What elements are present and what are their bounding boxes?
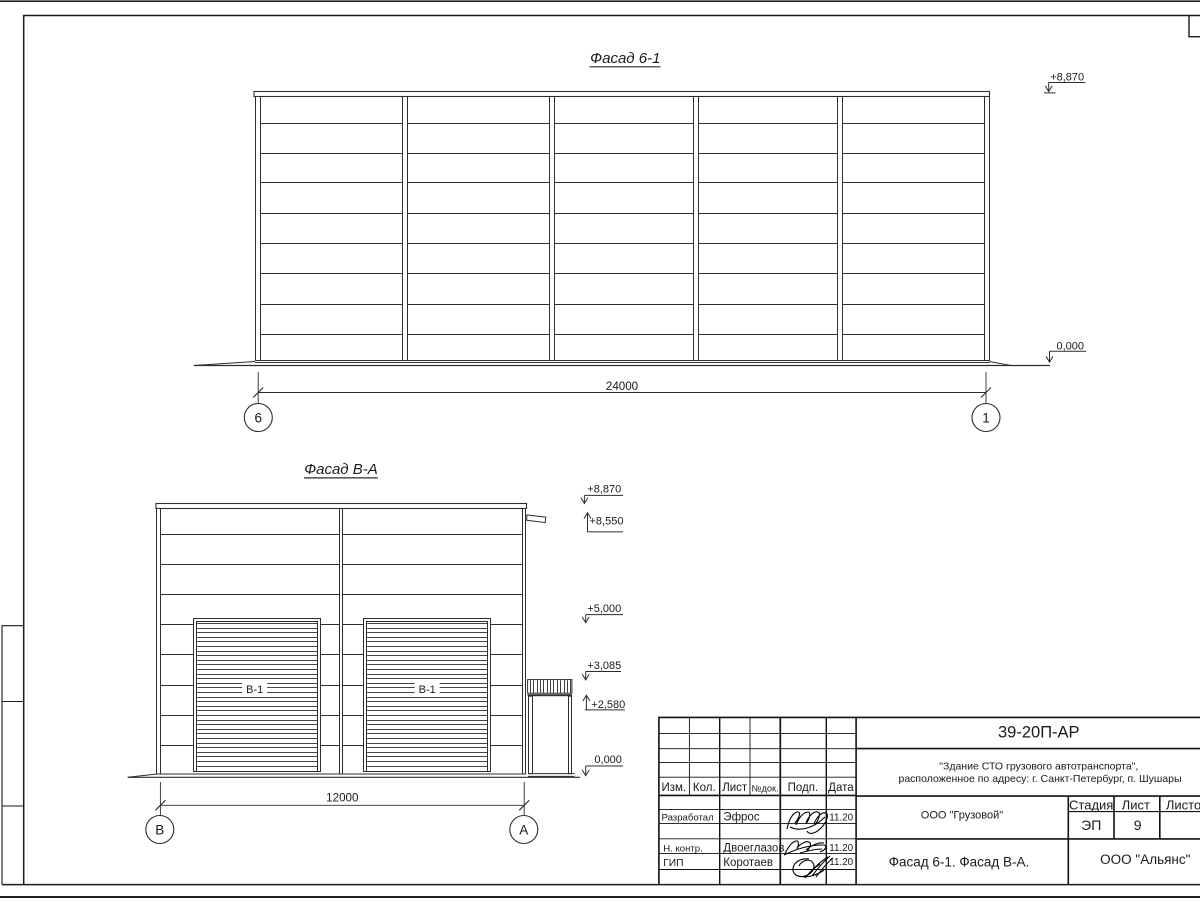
svg-text:Листов: Листов (1166, 798, 1200, 813)
svg-text:Подп.: Подп. (788, 782, 819, 794)
svg-text:Фасад В-А: Фасад В-А (304, 461, 378, 478)
svg-text:ООО "Альянс": ООО "Альянс" (1100, 852, 1190, 867)
svg-text:Фасад 6-1: Фасад 6-1 (590, 50, 660, 67)
svg-text:0,000: 0,000 (594, 754, 622, 766)
svg-text:1: 1 (982, 410, 990, 425)
svg-text:Лист: Лист (722, 782, 748, 794)
svg-text:+8,550: +8,550 (590, 516, 624, 528)
svg-text:Разработал: Разработал (662, 812, 714, 823)
svg-text:11.20: 11.20 (829, 843, 853, 854)
svg-text:Эфрос: Эфрос (723, 812, 760, 824)
svg-text:ЭП: ЭП (1081, 817, 1101, 833)
svg-text:Стадия: Стадия (1069, 798, 1113, 813)
svg-text:Лист: Лист (1122, 798, 1150, 813)
svg-text:Дата: Дата (828, 782, 854, 794)
svg-text:+5,000: +5,000 (587, 603, 621, 615)
svg-text:11.20: 11.20 (829, 812, 853, 823)
svg-text:Фасад 6-1. Фасад В-А.: Фасад 6-1. Фасад В-А. (889, 854, 1030, 869)
svg-text:0,000: 0,000 (1057, 340, 1085, 352)
svg-text:"Здание СТО грузового автотран: "Здание СТО грузового автотранспорта", (939, 761, 1138, 773)
svg-text:ООО "Грузовой": ООО "Грузовой" (921, 810, 1003, 822)
svg-text:А: А (519, 822, 528, 837)
svg-text:+8,870: +8,870 (587, 484, 621, 496)
svg-text:Изм.: Изм. (661, 782, 686, 794)
svg-text:+2,580: +2,580 (591, 699, 625, 711)
svg-text:В-1: В-1 (419, 684, 436, 696)
svg-text:+3,085: +3,085 (587, 660, 621, 672)
svg-text:В: В (155, 822, 164, 837)
svg-text:39-20П-АР: 39-20П-АР (998, 723, 1080, 741)
svg-text:ГИП: ГИП (663, 858, 683, 869)
svg-text:Двоеглазов: Двоеглазов (723, 843, 784, 855)
svg-text:24000: 24000 (606, 380, 638, 393)
svg-text:В-1: В-1 (246, 684, 263, 696)
svg-text:Н. контр.: Н. контр. (663, 844, 703, 855)
svg-text:9: 9 (1134, 817, 1142, 833)
svg-text:+8,870: +8,870 (1050, 71, 1084, 83)
svg-text:Кол.: Кол. (693, 782, 716, 794)
svg-text:12000: 12000 (326, 792, 358, 805)
svg-text:расположенное по адресу: г. Са: расположенное по адресу: г. Санкт-Петерб… (899, 773, 1182, 785)
svg-text:№док.: №док. (751, 783, 778, 793)
svg-text:Коротаев: Коротаев (723, 857, 773, 869)
svg-text:6: 6 (255, 410, 263, 425)
